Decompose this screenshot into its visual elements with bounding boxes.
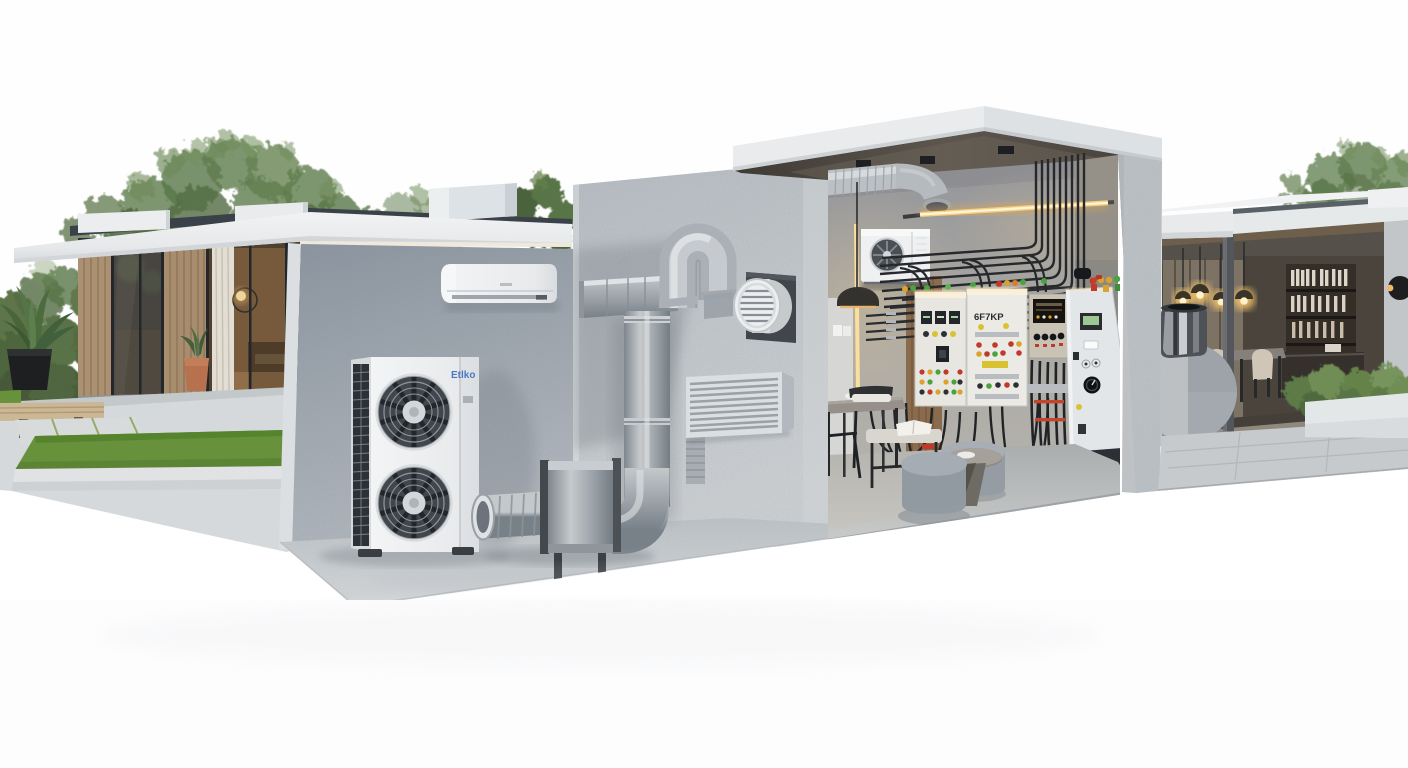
svg-text:6F7KP: 6F7KP [974, 312, 1004, 323]
svg-text:Etlko: Etlko [451, 370, 475, 381]
